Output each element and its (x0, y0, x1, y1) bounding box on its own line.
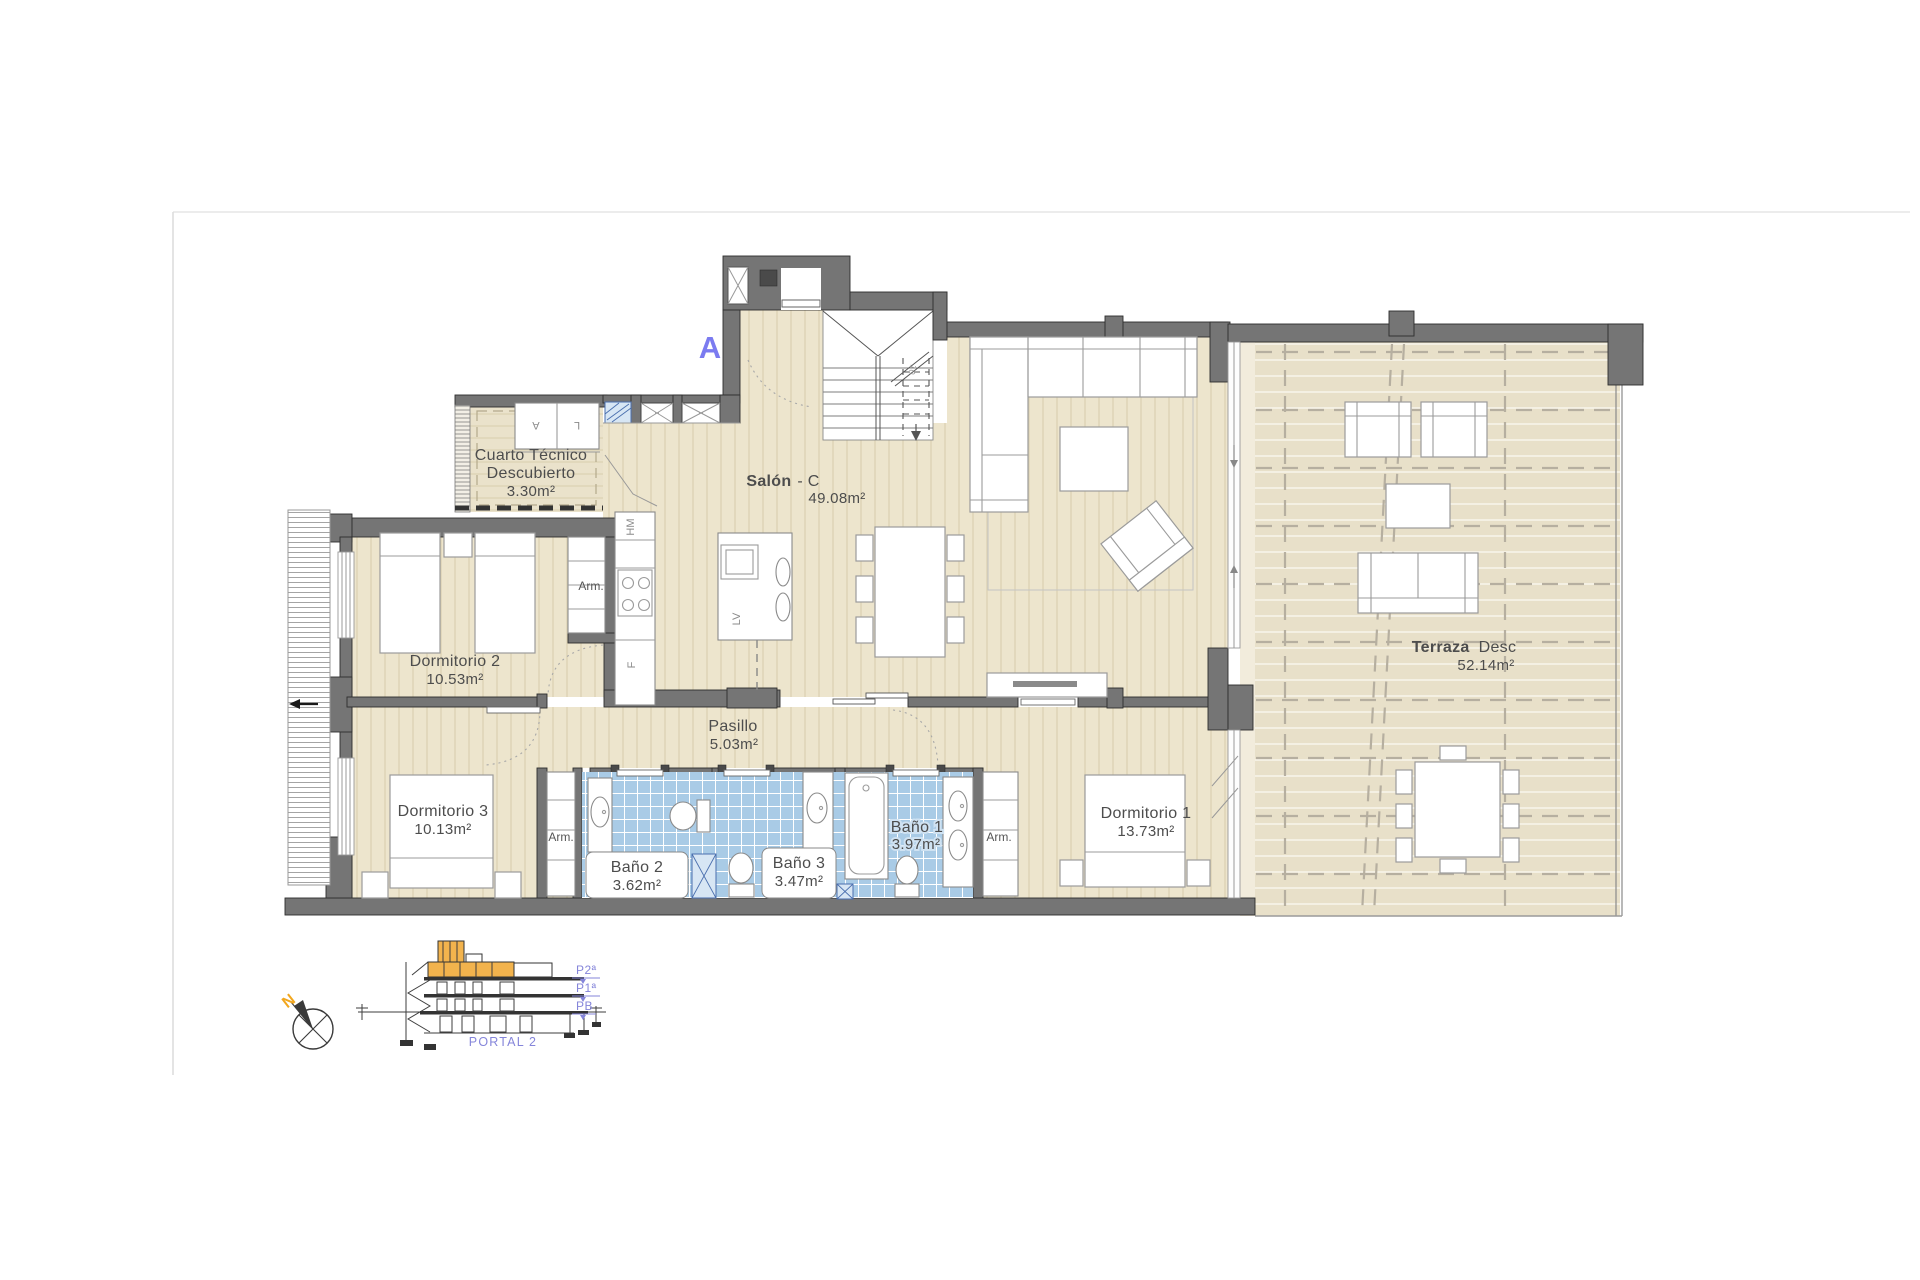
terrace-sofa (1358, 553, 1478, 613)
nightstand (362, 872, 388, 898)
nightstand (495, 872, 521, 898)
entry-door-leaf (782, 300, 820, 307)
label-washer: A (532, 419, 540, 431)
label-terraza: TerrazaDesc (1412, 639, 1517, 656)
svg-text:3.47m²: 3.47m² (775, 873, 824, 890)
label-cuarto-tecnico: Cuarto Técnico (475, 447, 587, 464)
svg-text:5.03m²: 5.03m² (710, 736, 759, 753)
svg-text:3.97m²: 3.97m² (892, 836, 941, 853)
label-dormitorio-2: Dormitorio 2 (410, 653, 501, 670)
label-floor-p1: P1ª (576, 981, 597, 995)
label-salon: Salón- C (746, 473, 819, 490)
svg-text:10.53m²: 10.53m² (426, 671, 483, 688)
svg-text:49.08m²: 49.08m² (808, 490, 865, 507)
exterior-stairs (288, 510, 330, 885)
label-oven-microwave: HM (625, 518, 637, 535)
compass-icon: N (279, 991, 333, 1049)
label-closet: Arm. (548, 830, 573, 844)
sink-bowl (776, 558, 790, 586)
floor-plan-page: 10 (0, 0, 1920, 1280)
label-dormitorio-3: Dormitorio 3 (398, 803, 489, 820)
terrace-dining-table (1396, 746, 1519, 873)
svg-text:Descubierto: Descubierto (487, 465, 576, 482)
sliding-door (833, 699, 875, 704)
svg-text:13.73m²: 13.73m² (1117, 823, 1174, 840)
label-portal: PORTAL 2 (469, 1035, 537, 1049)
insulation-hatch (455, 405, 470, 512)
label-dishwasher: LV (731, 612, 743, 625)
floor-plan-drawing: 10 (0, 0, 1920, 1280)
tv (1013, 681, 1077, 687)
svg-text:52.14m²: 52.14m² (1457, 657, 1514, 674)
section-marker-a: A (699, 330, 721, 365)
building-section: P2ª P1ª PB PORTAL 2 (356, 941, 606, 1050)
nightstand (444, 533, 472, 557)
dining-table (856, 527, 964, 657)
label-floor-p2: P2ª (576, 963, 597, 977)
label-dormitorio-1: Dormitorio 1 (1101, 805, 1192, 822)
svg-text:10.13m²: 10.13m² (414, 821, 471, 838)
label-closet: Arm. (578, 579, 603, 593)
stairs: 10 (823, 310, 933, 441)
section-highlighted-floor (428, 962, 514, 977)
label-closet: Arm. (986, 830, 1011, 844)
label-pasillo: Pasillo (708, 718, 757, 735)
coffee-table (1060, 427, 1128, 491)
sink-bowl (776, 593, 790, 621)
svg-text:3.62m²: 3.62m² (613, 877, 662, 894)
label-bano-3: Baño 3 (773, 855, 826, 872)
terrace-side-table (1386, 484, 1450, 528)
label-dryer: L (574, 419, 580, 431)
label-bano-1: Baño 1 (891, 819, 944, 836)
section-tower (438, 941, 464, 962)
nightstand (1187, 860, 1210, 886)
nightstand (1060, 860, 1083, 886)
label-floor-pb: PB (576, 999, 593, 1013)
label-bano-2: Baño 2 (611, 859, 664, 876)
label-fridge: F (626, 661, 638, 668)
svg-text:3.30m²: 3.30m² (507, 483, 556, 500)
